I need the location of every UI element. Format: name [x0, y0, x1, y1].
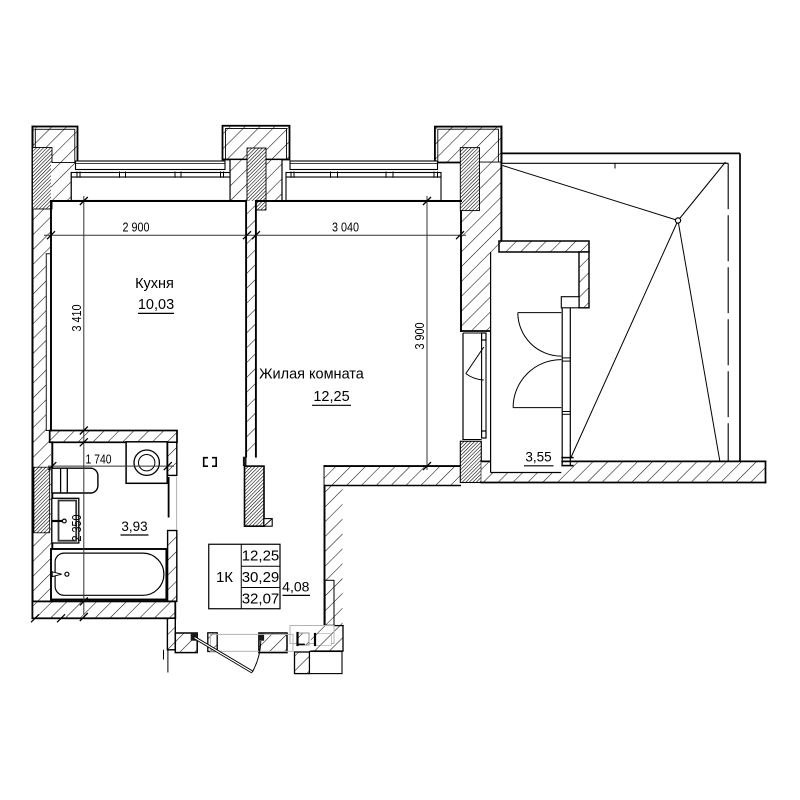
svg-text:2 350: 2 350 [70, 514, 84, 541]
svg-text:12,25: 12,25 [242, 548, 280, 565]
svg-text:Кухня: Кухня [135, 276, 174, 292]
svg-text:10,03: 10,03 [138, 297, 174, 313]
svg-text:12,25: 12,25 [313, 389, 349, 405]
svg-text:Жилая комната: Жилая комната [259, 367, 365, 383]
svg-text:1 740: 1 740 [86, 452, 112, 466]
svg-text:3 900: 3 900 [413, 322, 427, 349]
svg-text:3,93: 3,93 [121, 519, 147, 534]
svg-text:4,08: 4,08 [282, 579, 309, 595]
svg-text:30,29: 30,29 [242, 569, 280, 586]
svg-text:3 040: 3 040 [332, 221, 359, 235]
svg-text:3 410: 3 410 [70, 304, 84, 331]
svg-text:32,07: 32,07 [242, 591, 280, 608]
svg-text:3,55: 3,55 [525, 450, 551, 465]
svg-text:2 900: 2 900 [123, 221, 150, 235]
svg-text:1К: 1К [216, 569, 233, 586]
